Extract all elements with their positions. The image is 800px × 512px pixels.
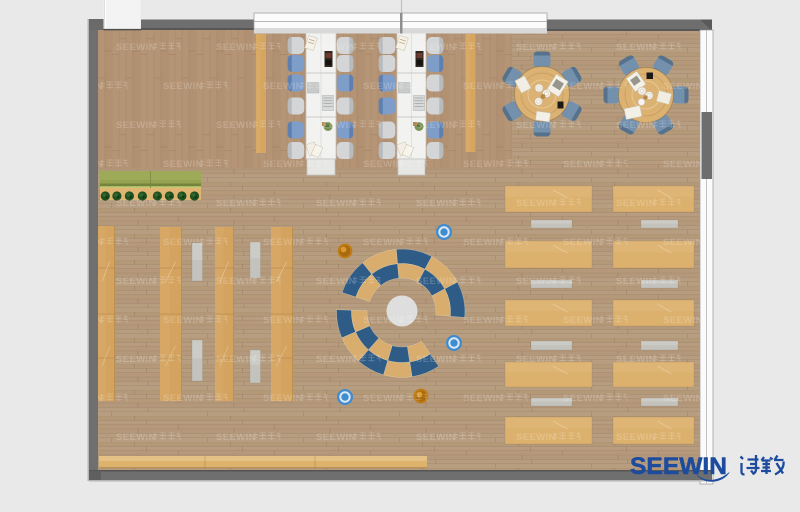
svg-text:SEEWIN: SEEWIN [630,453,727,480]
